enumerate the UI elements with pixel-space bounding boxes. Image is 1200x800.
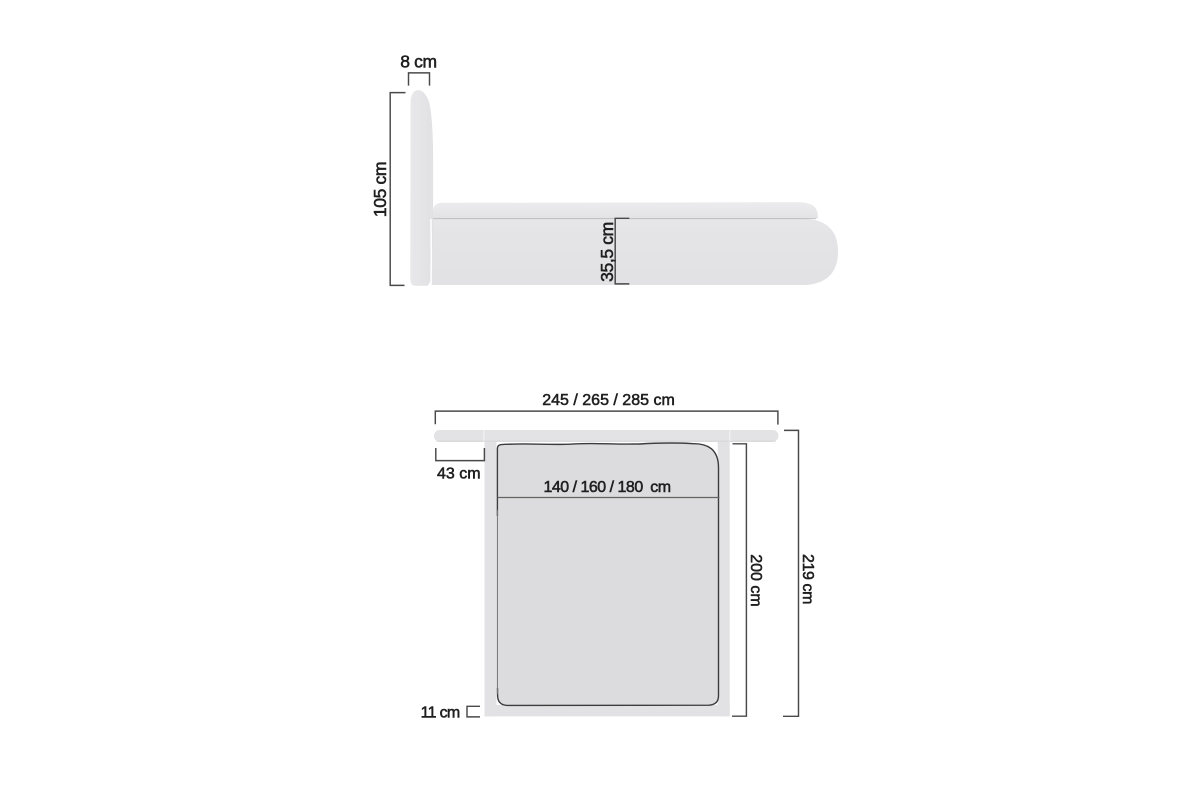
svg-text:219 cm: 219 cm <box>799 554 816 604</box>
svg-text:43 cm: 43 cm <box>437 466 481 483</box>
svg-text:200 cm: 200 cm <box>747 554 764 606</box>
svg-text:35,5 cm: 35,5 cm <box>597 222 617 282</box>
svg-text:8 cm: 8 cm <box>400 52 437 72</box>
svg-text:140 / 160 / 180 cm: 140 / 160 / 180 cm <box>543 479 670 496</box>
svg-text:245 / 265 / 285 cm: 245 / 265 / 285 cm <box>542 392 675 409</box>
svg-text:11 cm: 11 cm <box>421 705 460 722</box>
svg-text:105 cm: 105 cm <box>370 162 390 217</box>
